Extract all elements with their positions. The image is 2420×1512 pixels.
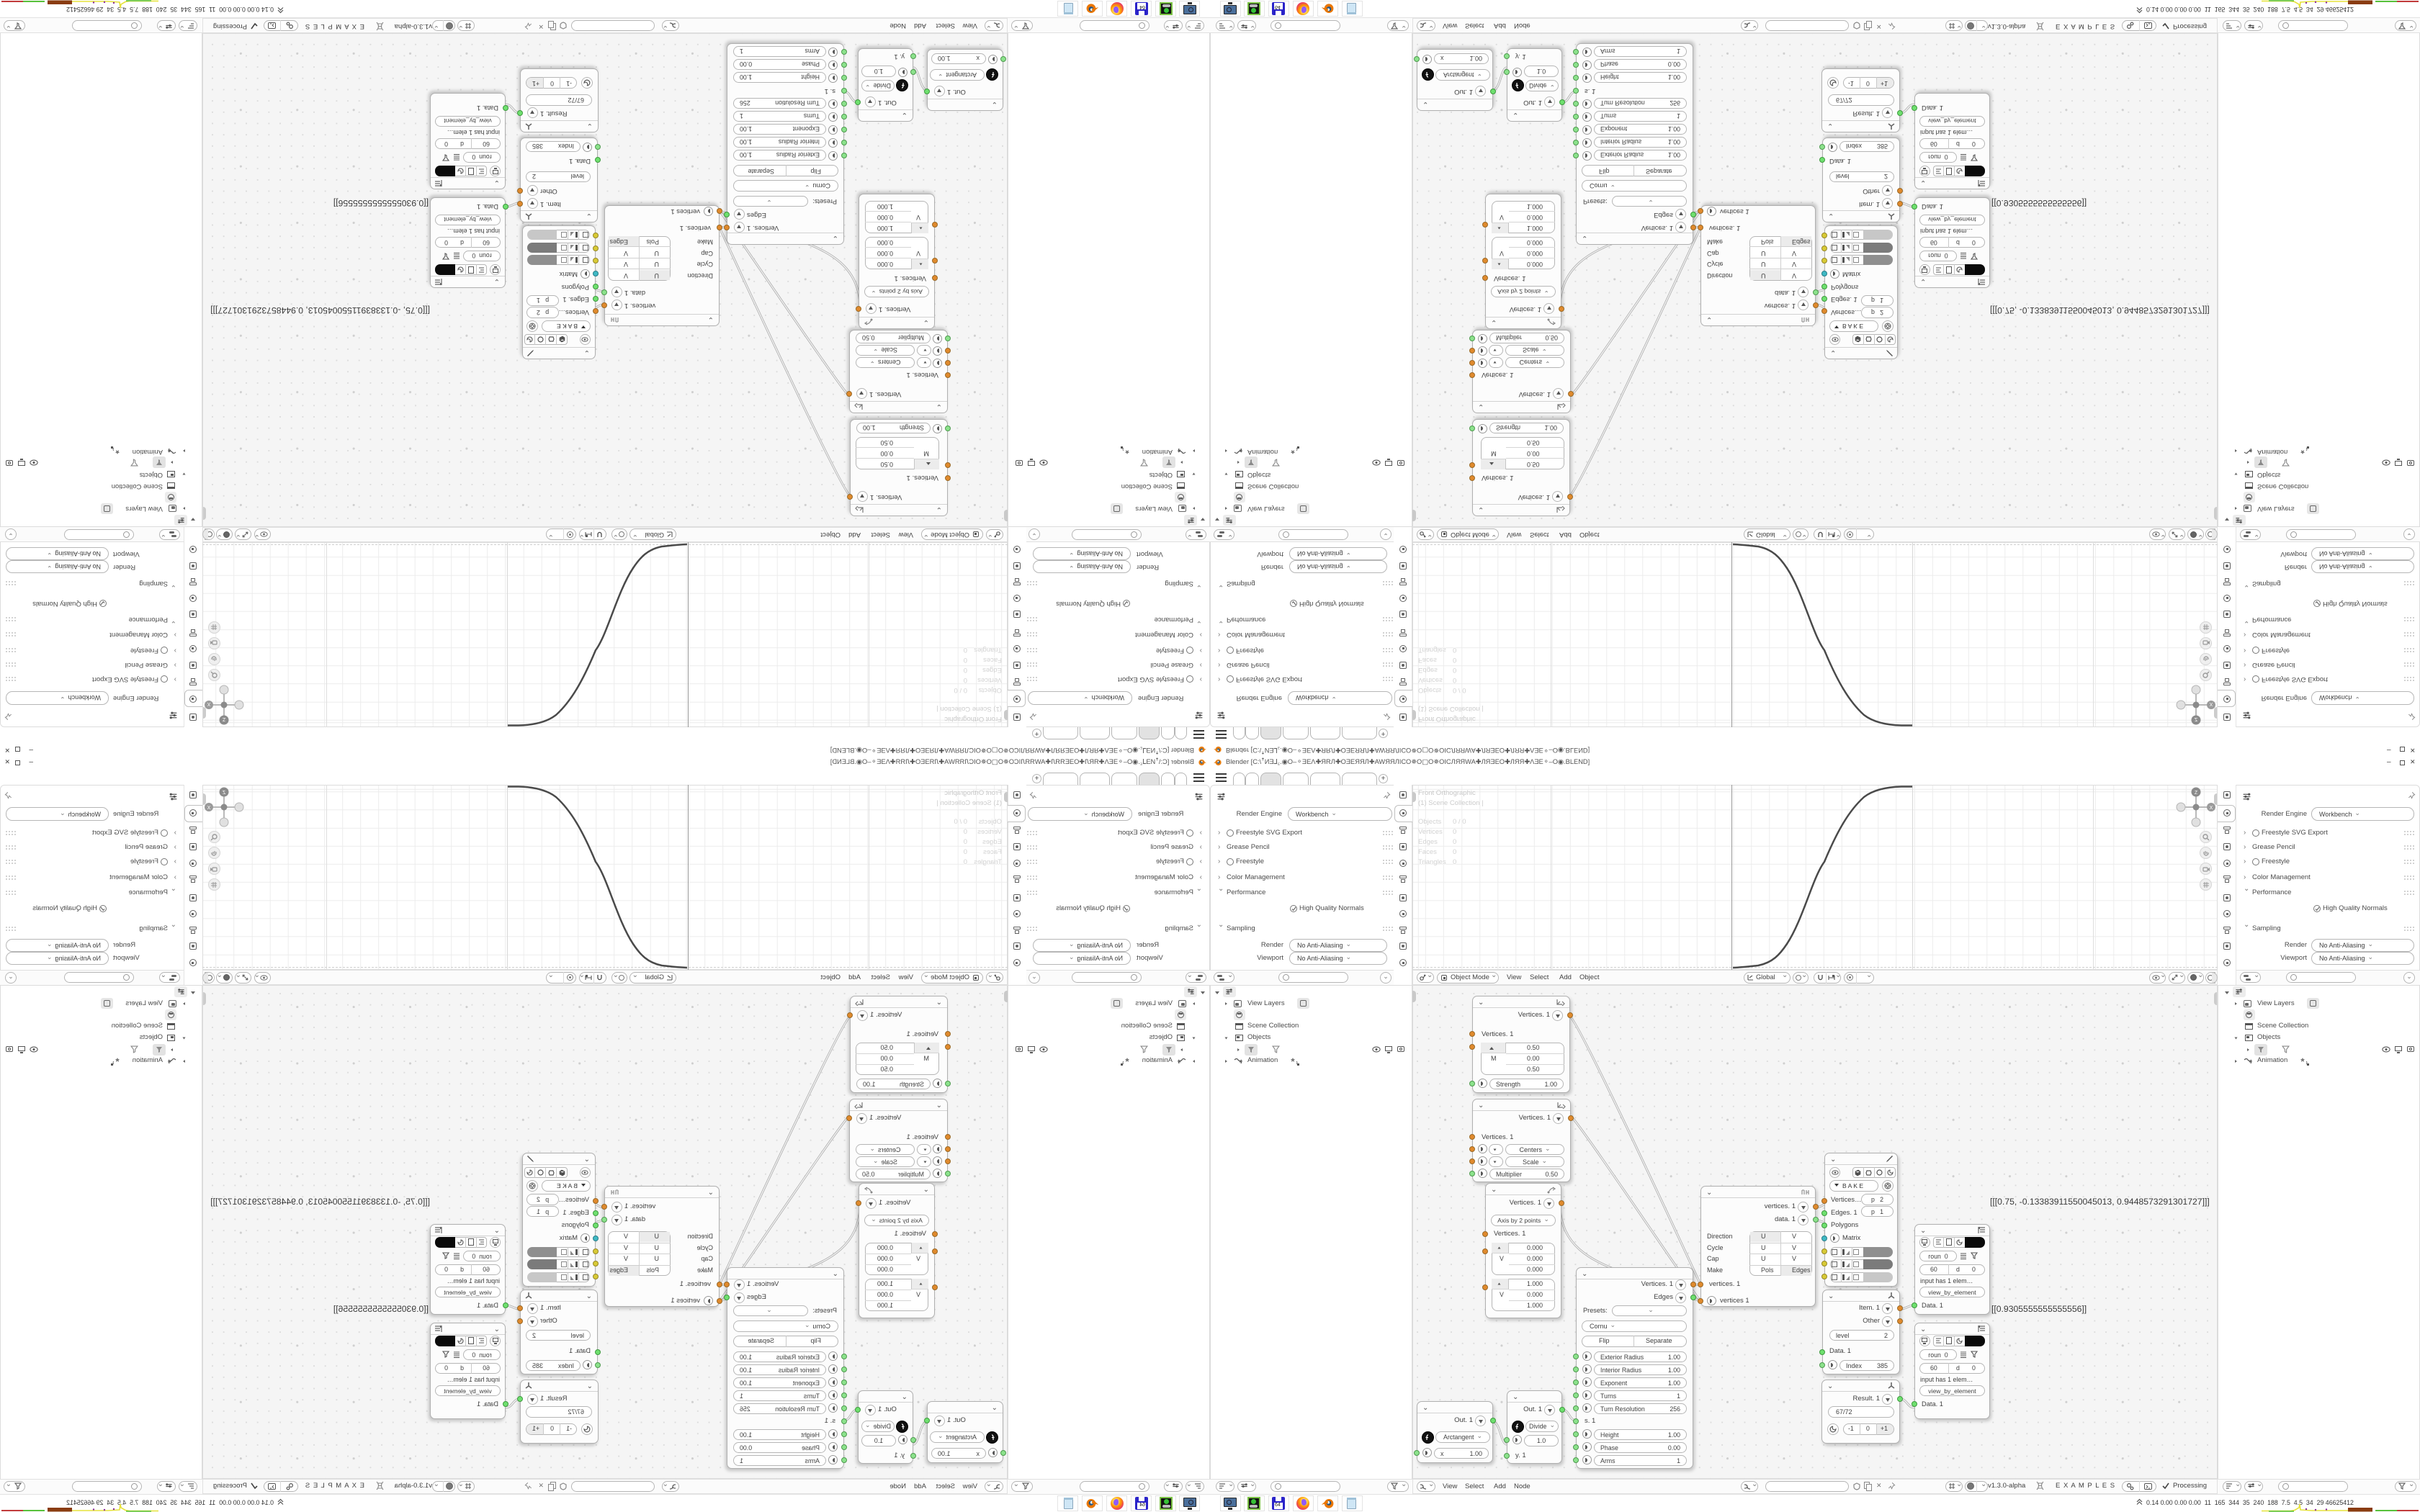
svg-text:Z: Z bbox=[222, 791, 225, 796]
svg-text:Z: Z bbox=[222, 716, 225, 721]
svg-text:Z: Z bbox=[2195, 716, 2198, 721]
svg-text:X: X bbox=[2210, 701, 2213, 706]
svg-text:X: X bbox=[207, 701, 210, 706]
svg-text:Z: Z bbox=[2195, 791, 2198, 796]
